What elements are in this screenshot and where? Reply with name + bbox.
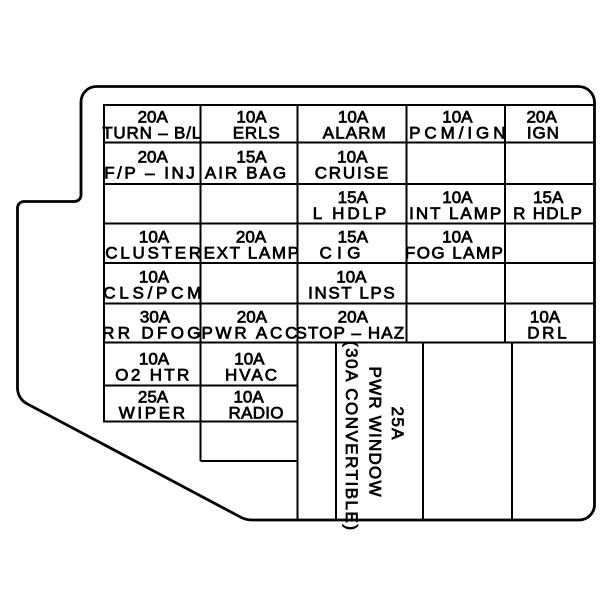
svg-text:RADIO: RADIO (229, 404, 284, 423)
svg-text:HVAC: HVAC (225, 366, 277, 385)
svg-text:CRUISE: CRUISE (315, 164, 388, 183)
svg-text:FOG LAMP: FOG LAMP (405, 244, 503, 263)
svg-text:WIPER: WIPER (119, 404, 185, 423)
svg-text:IGN: IGN (527, 124, 559, 143)
svg-text:TURN – B/L: TURN – B/L (102, 124, 201, 143)
svg-text:CIG: CIG (320, 244, 361, 263)
svg-text:F/P – INJ: F/P – INJ (104, 164, 194, 183)
svg-text:(30A CONVERTIBLE): (30A CONVERTIBLE) (342, 341, 361, 530)
svg-text:L HDLP: L HDLP (313, 204, 386, 223)
svg-text:25A: 25A (388, 407, 407, 441)
svg-text:ALARM: ALARM (323, 124, 386, 143)
svg-text:EXT LAMP: EXT LAMP (204, 244, 299, 263)
svg-text:PWR WINDOW: PWR WINDOW (366, 367, 385, 497)
svg-text:STOP – HAZ: STOP – HAZ (296, 324, 405, 343)
svg-text:DRL: DRL (527, 324, 566, 343)
svg-text:INT LAMP: INT LAMP (409, 204, 501, 223)
svg-text:ERLS: ERLS (233, 124, 280, 143)
svg-text:O2 HTR: O2 HTR (115, 366, 189, 385)
svg-text:R HDLP: R HDLP (513, 204, 582, 223)
